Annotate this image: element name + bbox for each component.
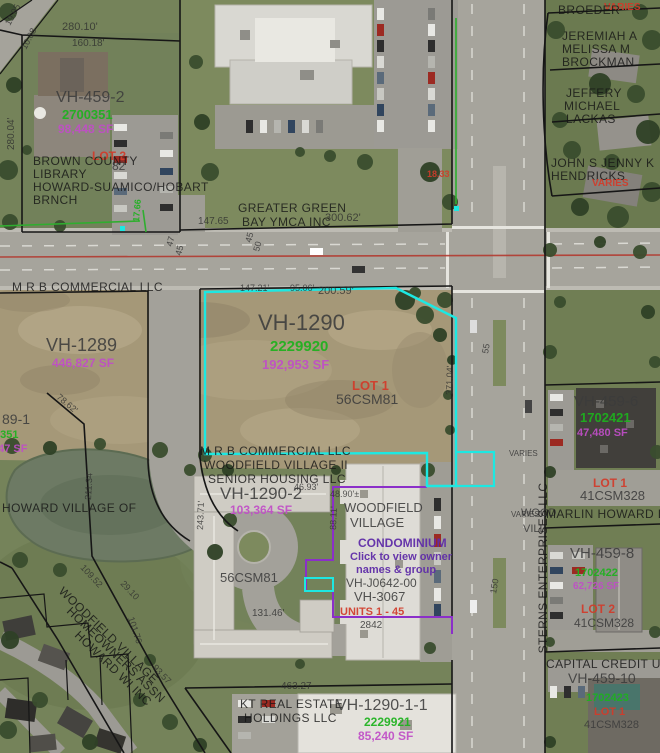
parcel-value-vh-1290: 2229920: [270, 338, 328, 355]
dim-280-04: 280.04': [6, 117, 17, 150]
csm-vh-459-10: 41CSM328: [584, 719, 639, 731]
map-canvas[interactable]: VH-1290: [0, 0, 660, 753]
parcel-ymca[interactable]: [180, 0, 452, 230]
owner-library-1: BROWN COUNTY: [33, 154, 138, 168]
lot-label-vh-459-10: LOT 1: [594, 706, 625, 718]
condo-link-title[interactable]: CONDOMINIUM: [358, 536, 447, 550]
parcel-value-vh-459-2: 2700351: [62, 107, 113, 122]
parcel-value-vh-459-6: 1702421: [580, 410, 631, 425]
survey-marker-cyan-2: [454, 206, 459, 211]
lot-label-vh-459-8: LOT 2: [581, 602, 615, 616]
parcel-id-vh-459-2: VH-459-2: [56, 89, 125, 106]
dim-88-11: 88.11': [328, 506, 339, 530]
owner-brockman-2: MELISSA M: [562, 42, 630, 56]
parcel-area-vh-1290-1-1: 85,240 SF: [358, 729, 413, 743]
parcel-area-vh-459-6: 47,480 SF: [577, 427, 628, 439]
dim-varies-2: VARIES: [592, 178, 629, 189]
dim-varies-3: VARIES: [509, 449, 538, 458]
owner-hendricks-1: JOHN S JENNY K: [551, 156, 654, 170]
csm-vh-459-8: 41CSM328: [574, 616, 634, 630]
dim-55: 55: [480, 343, 492, 355]
csm-vh-459-6: 41CSM328: [580, 488, 645, 503]
dim-147-65: 147.65: [198, 216, 229, 227]
dim-160-18: 160.18': [72, 38, 105, 49]
parcel-id-vh-459-6: VH-459-6: [574, 393, 638, 410]
dim-300-62: 300.62': [325, 212, 361, 224]
condo-name-2: VILLAGE: [350, 515, 405, 530]
owner-kt-1: KT REAL ESTATE: [240, 697, 343, 711]
parcel-value-vh-1289-1: 0351: [0, 429, 18, 441]
condo-id-vh-3067: VH-3067: [354, 589, 405, 604]
condo-link-line-2[interactable]: names & group: [356, 564, 436, 576]
condo-link-line-1[interactable]: Click to view owner: [350, 551, 453, 563]
owner-mrb-north: M R B COMMERCIAL LLC: [12, 280, 163, 294]
owner-woodfield-village-ii: WOODFIELD VILLAGE II: [204, 458, 348, 472]
dim-18-33: 18.33: [427, 169, 450, 179]
condo-num: 2842: [360, 620, 383, 631]
owner-mrb-2: M R B COMMERCIAL LLC: [200, 444, 351, 458]
dim-280-10: 280.10': [62, 21, 98, 33]
dim-48-90: 48.90'±: [330, 489, 359, 499]
parcel-vh-1289[interactable]: [0, 290, 148, 465]
parcel-id-vh-1289: VH-1289: [46, 335, 117, 355]
owner-lackas-1: JEFFERY: [566, 86, 622, 100]
owner-howard-village: HOWARD VILLAGE OF: [2, 501, 136, 515]
owner-library-4: BRNCH: [33, 193, 78, 207]
owner-broeder: BROEDER: [558, 3, 620, 17]
parcel-id-vh-1289-1: 89-1: [2, 411, 30, 427]
parcel-area-vh-1289: 446,827 SF: [52, 356, 114, 370]
condo-id-j0642: VH-J0642-00: [346, 576, 417, 590]
condo-units: UNITS 1 - 45: [340, 606, 404, 618]
owner-library-2: LIBRARY: [33, 167, 87, 181]
parcel-area-vh-1290: 192,953 SF: [262, 357, 329, 372]
csm-vh-1290: 56CSM81: [336, 391, 398, 407]
dim-17-66: 17.66: [131, 199, 143, 222]
owner-lackas-3: LACKAS: [566, 112, 616, 126]
parcel-id-vh-459-10: VH-459-10: [568, 670, 636, 686]
csm-vh-1290-2: 56CSM81: [220, 570, 278, 585]
owner-library-3: HOWARD-SUAMICO/HOBART: [33, 180, 209, 194]
dim-211-34: 211.34': [83, 471, 94, 500]
dim-46-93: 46.93': [294, 482, 319, 492]
parcel-id-vh-1290: VH-1290: [258, 310, 345, 335]
condo-name-1: WOODFIELD: [344, 500, 423, 515]
parcel-area-vh-1289-1: 947 SF: [0, 443, 28, 455]
owner-brockman-3: BROCKMAN: [562, 55, 635, 69]
owner-lackas-2: MICHAEL: [564, 99, 620, 113]
owner-kt-2: HOLDINGS LLC: [244, 711, 337, 725]
parcel-value-vh-459-8: 1702422: [575, 567, 618, 579]
parcel-value-vh-1290-1-1: 2229921: [364, 715, 411, 729]
dim-95-06: 95.06': [290, 283, 315, 293]
parcel-area-vh-459-2: 98,448 SF: [58, 122, 113, 136]
dim-243-71: 243.71': [195, 500, 206, 530]
parcel-id-vh-459-8: VH-459-8: [570, 545, 634, 562]
dim-463-27: 463.27: [281, 681, 312, 692]
owner-ymca-2: BAY YMCA INC: [242, 215, 331, 229]
parcel-id-vh-1290-1-1: VH-1290-1-1: [336, 697, 428, 714]
dim-147-21: 147.21': [240, 283, 270, 293]
gis-map-viewport[interactable]: VH-1290: [0, 0, 660, 753]
owner-marlin-howard: MARLIN HOWARD LLC: [546, 507, 660, 521]
owner-capital-credit-union: CAPITAL CREDIT UNION: [546, 657, 660, 671]
dim-131-46: 131.46': [252, 608, 285, 619]
dim-371-04: 371.04': [444, 365, 455, 395]
parcel-area-vh-459-8: 62,726 SF: [573, 581, 619, 592]
parcel-value-vh-459-10: 1702423: [586, 692, 629, 704]
owner-brockman-1: JEREMIAH A: [562, 29, 637, 43]
parcel-area-vh-1290-2: 103,364 SF: [230, 503, 292, 517]
dim-200-59: 200.59': [318, 285, 354, 297]
owner-sterns: STERNS ENTERPRISES LLC: [536, 483, 550, 654]
parcel-id-vh-1290-2: VH-1290-2: [220, 484, 302, 503]
